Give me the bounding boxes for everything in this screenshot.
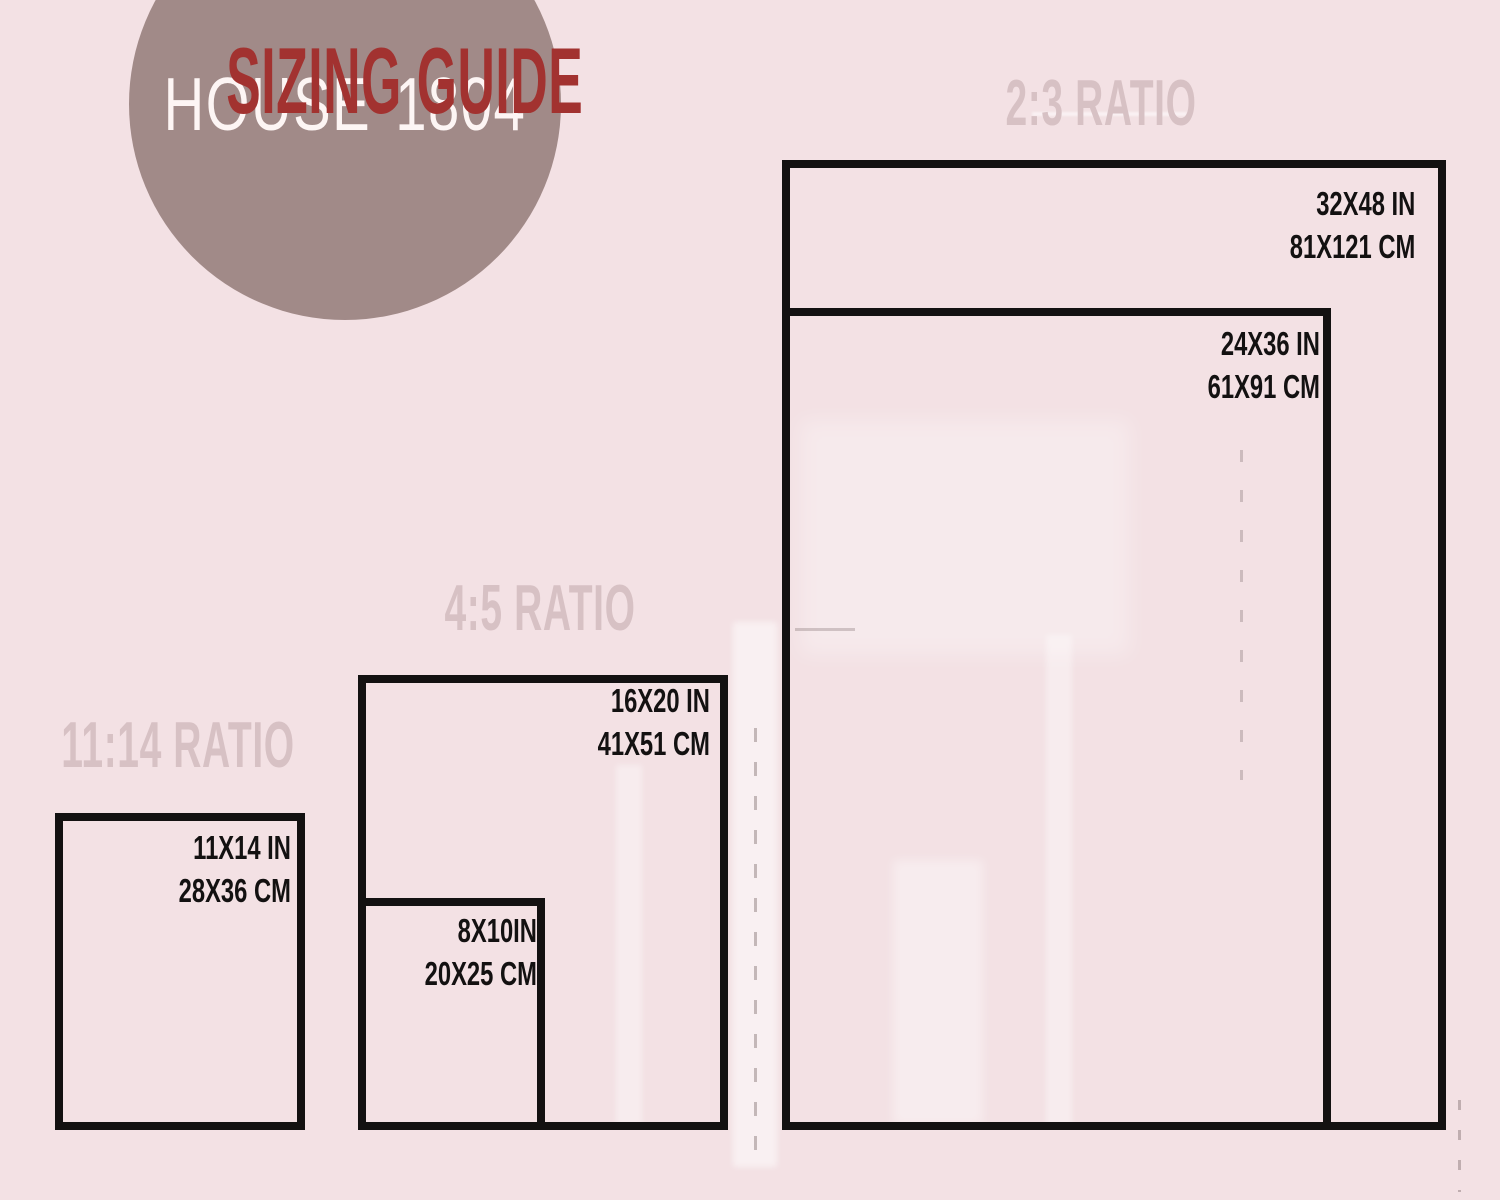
size-centimeters: 61X91 CM xyxy=(1208,366,1320,409)
size-inches: 11X14 IN xyxy=(179,827,291,870)
size-label-32x48: 32X48 IN 81X121 CM xyxy=(1290,183,1415,269)
size-label-16x20: 16X20 IN 41X51 CM xyxy=(598,680,710,766)
artifact-dashed-line xyxy=(754,728,757,1158)
sizing-guide-title: SIZING GUIDE xyxy=(226,34,464,128)
brand-logo-circle: HOUSE 1804 SIZING GUIDE xyxy=(129,0,561,320)
size-label-24x36: 24X36 IN 61X91 CM xyxy=(1208,323,1320,409)
size-label-8x10: 8X10IN 20X25 CM xyxy=(425,910,537,996)
size-inches: 8X10IN xyxy=(425,910,537,953)
frame-24x36in xyxy=(782,308,1331,1130)
ratio-label-2-3: 2:3 RATIO xyxy=(921,70,1281,135)
ratio-label-4-5: 4:5 RATIO xyxy=(360,575,720,640)
ratio-label-11-14: 11:14 RATIO xyxy=(0,712,358,777)
size-inches: 32X48 IN xyxy=(1290,183,1415,226)
size-centimeters: 28X36 CM xyxy=(179,870,291,913)
size-label-11x14: 11X14 IN 28X36 CM xyxy=(179,827,291,913)
artifact-streak xyxy=(733,622,777,1167)
size-centimeters: 41X51 CM xyxy=(598,723,710,766)
size-inches: 24X36 IN xyxy=(1208,323,1320,366)
size-inches: 16X20 IN xyxy=(598,680,710,723)
artifact-dashed-line xyxy=(1458,1100,1461,1192)
size-centimeters: 20X25 CM xyxy=(425,953,537,996)
size-centimeters: 81X121 CM xyxy=(1290,226,1415,269)
sizing-guide-poster: 2:3 RATIO 4:5 RATIO 11:14 RATIO 32X48 IN… xyxy=(0,0,1500,1200)
